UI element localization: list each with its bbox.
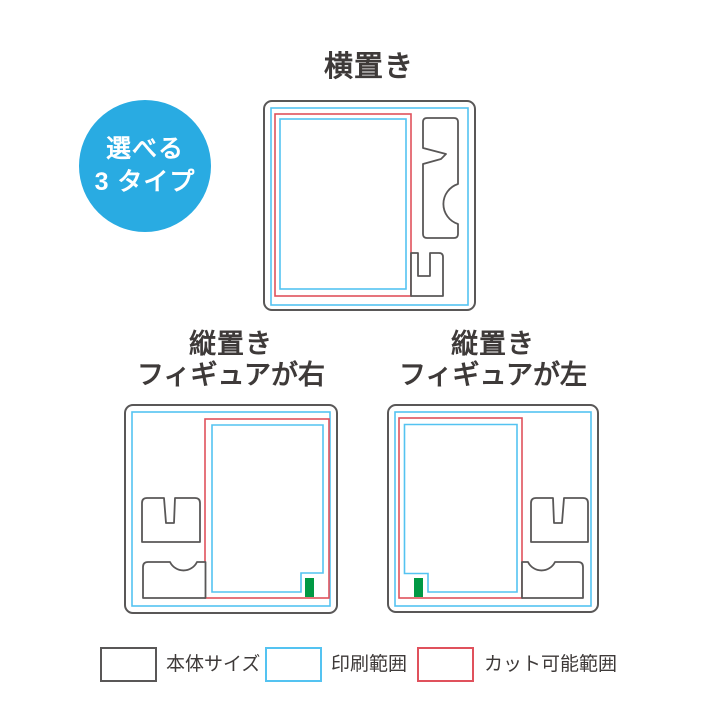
legend-label-body-size: 本体サイズ: [166, 645, 260, 684]
vertical-figure-right-title: 縦置き フィギュアが右: [106, 329, 356, 391]
panel-print-area-outline: [212, 425, 323, 592]
panel-print-area-outline: [280, 119, 406, 289]
horizontal-layout-title: 横置き: [269, 50, 469, 84]
legend: 本体サイズ 印刷範囲 カット可能範囲: [0, 645, 720, 685]
badge-line1: 選べる: [106, 133, 184, 166]
legend-swatch-body-size: [100, 647, 157, 682]
legend-swatch-print-area: [265, 647, 322, 682]
stand-back-part: [142, 498, 200, 542]
vertical-figure-left-title-line2: フィギュアが左: [368, 360, 618, 391]
cut-area-outline: [275, 114, 411, 296]
choose-3-types-badge: 選べる 3 タイプ: [79, 100, 211, 232]
stand-base-part: [411, 253, 443, 296]
vertical-figure-right-title-line1: 縦置き: [106, 329, 356, 360]
cut-area-outline: [205, 419, 329, 598]
panel-print-area-outline: [405, 425, 518, 593]
stand-tab-green: [414, 578, 423, 597]
vertical-figure-left-title-line1: 縦置き: [368, 329, 618, 360]
infographic-canvas: 横置き 選べる 3 タイプ 縦置き フィギュアが右 縦置き フィギュアが左: [0, 0, 720, 720]
vertical-figure-left-diagram: [383, 400, 605, 618]
stand-back-part: [531, 498, 588, 542]
legend-swatch-cut-area: [417, 647, 474, 682]
stand-base-part: [143, 562, 206, 598]
vertical-figure-left-title: 縦置き フィギュアが左: [368, 329, 618, 391]
legend-label-print-area: 印刷範囲: [331, 645, 407, 684]
vertical-figure-right-title-line2: フィギュアが右: [106, 360, 356, 391]
cut-area-outline: [399, 418, 522, 598]
horizontal-layout-diagram: [260, 97, 480, 315]
stand-tab-green: [305, 578, 314, 597]
stand-base-part: [522, 562, 583, 598]
badge-line2: 3 タイプ: [95, 166, 196, 199]
vertical-figure-right-diagram: [120, 400, 342, 618]
stand-back-part: [423, 118, 458, 238]
legend-label-cut-area: カット可能範囲: [484, 645, 617, 684]
